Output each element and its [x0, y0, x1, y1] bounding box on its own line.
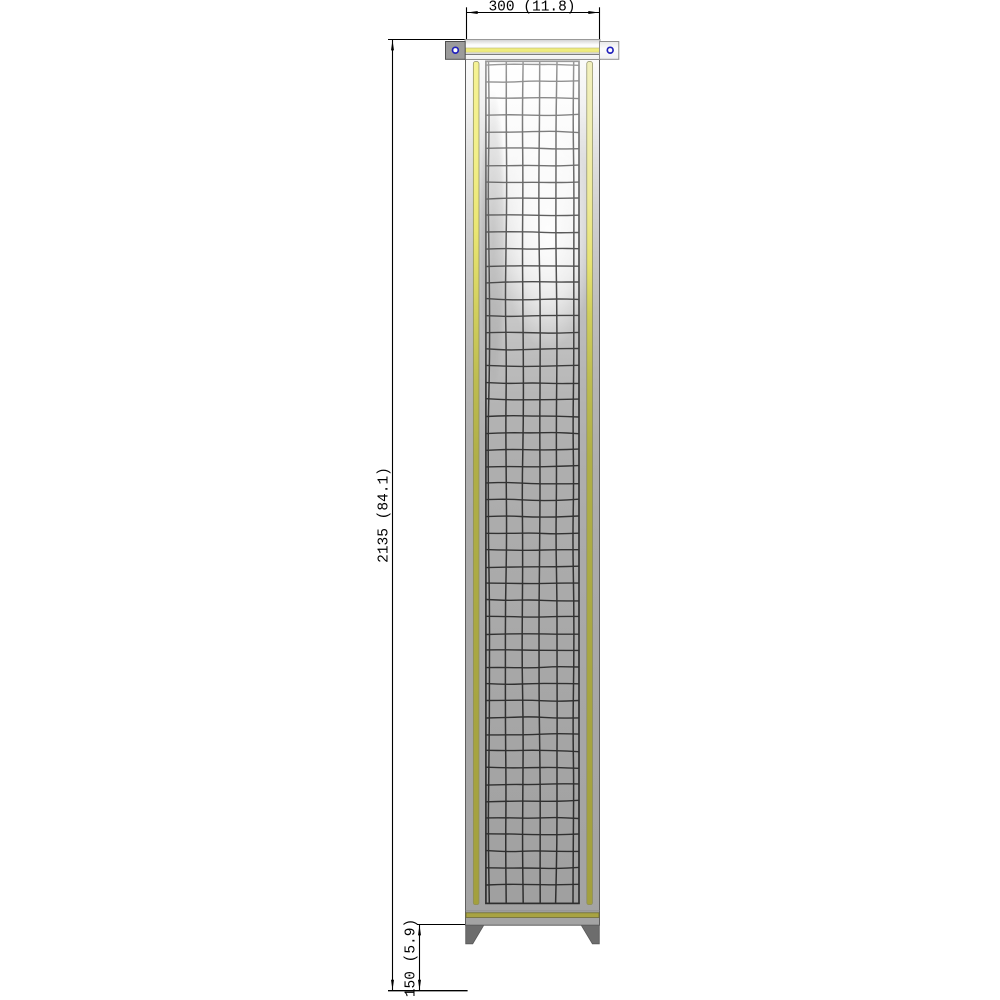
- svg-text:150 (5.9): 150 (5.9): [404, 919, 420, 997]
- svg-text:2135 (84.1): 2135 (84.1): [377, 467, 393, 563]
- svg-text:300 (11.8): 300 (11.8): [488, 0, 575, 15]
